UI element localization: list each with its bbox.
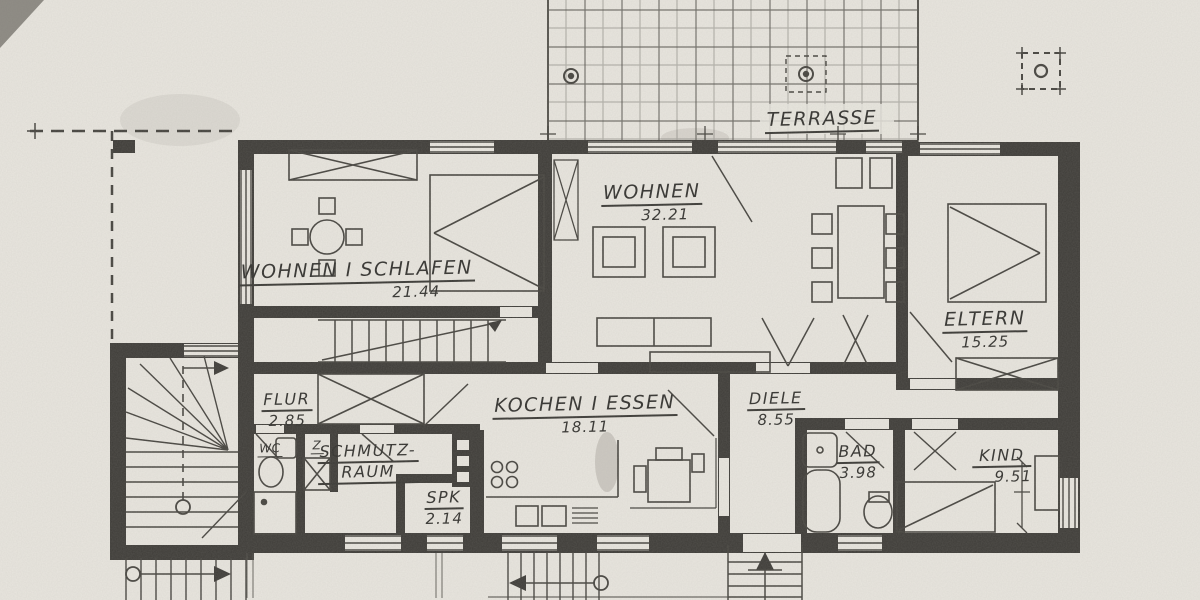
- label-wohnen-schlafen: WOHNEN I SCHLAFEN 21.44: [239, 258, 476, 305]
- label-diele: DIELE 8.55: [747, 389, 805, 429]
- label-bad: BAD 3.98: [836, 442, 880, 482]
- label-flur: FLUR 2.85: [261, 390, 313, 430]
- label-eltern: ELTERN 15.25: [942, 308, 1028, 352]
- label-terrasse: TERRASSE: [765, 108, 880, 135]
- label-kochen-essen: KOCHEN I ESSEN 18.11: [492, 392, 678, 438]
- label-kind: KIND 9.51: [972, 446, 1032, 486]
- label-wohnen: WOHNEN 32.21: [601, 181, 703, 225]
- label-z: Z: [310, 439, 323, 455]
- floor-plan-scan: TERRASSE WOHNEN 32.21 WOHNEN I SCHLAFEN …: [0, 0, 1200, 600]
- label-wc: WC: [257, 442, 283, 458]
- label-spk: SPK 2.14: [424, 488, 464, 528]
- room-labels: TERRASSE WOHNEN 32.21 WOHNEN I SCHLAFEN …: [0, 0, 1200, 600]
- label-schmutzraum: SCHMUTZ- RAUM: [317, 441, 418, 485]
